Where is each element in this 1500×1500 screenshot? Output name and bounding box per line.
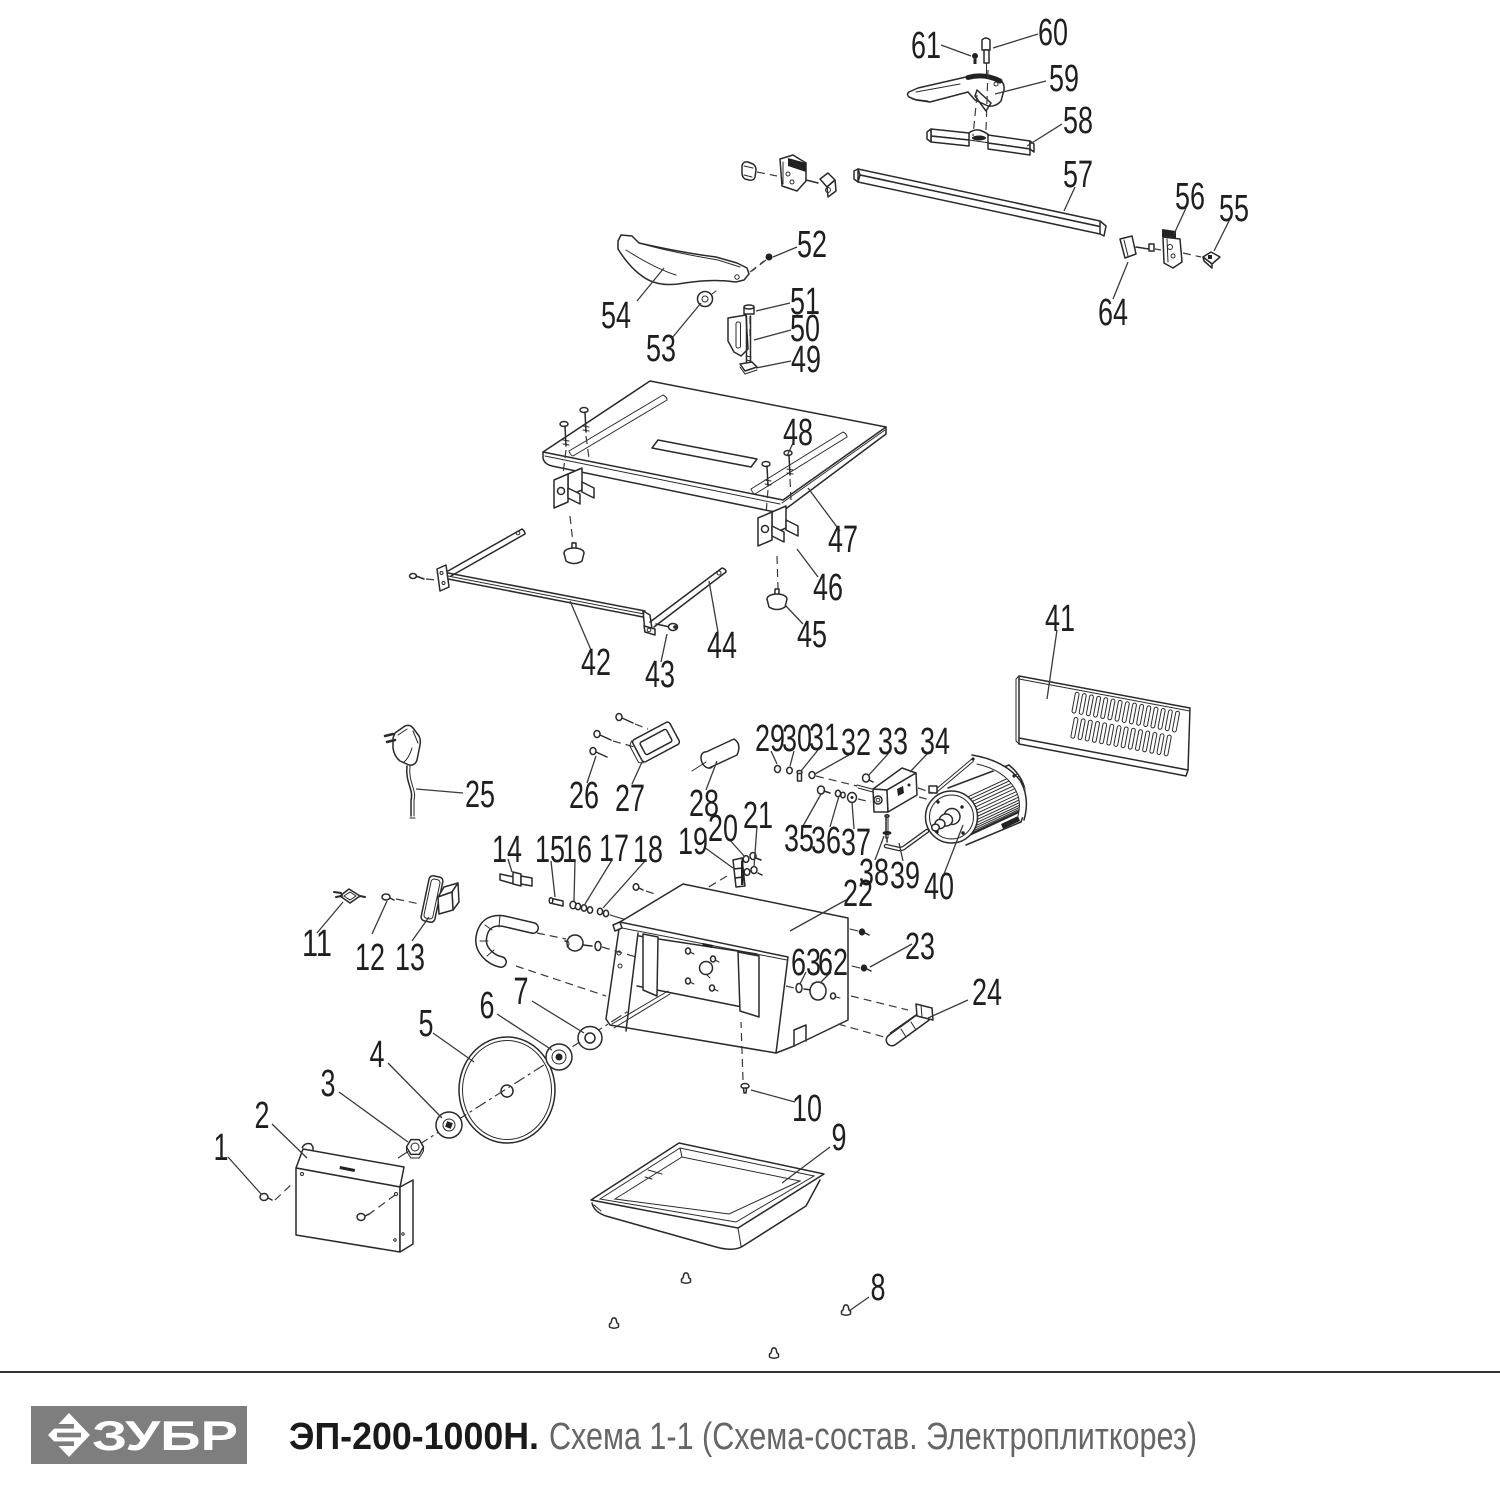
svg-text:30: 30: [782, 718, 812, 760]
svg-text:60: 60: [1038, 12, 1068, 54]
svg-text:56: 56: [1175, 176, 1205, 218]
svg-text:48: 48: [783, 412, 813, 454]
svg-text:62: 62: [818, 942, 848, 984]
svg-text:13: 13: [395, 937, 425, 979]
svg-text:47: 47: [828, 519, 858, 561]
svg-text:11: 11: [302, 923, 332, 965]
svg-text:23: 23: [905, 926, 935, 968]
svg-text:61: 61: [911, 25, 941, 67]
svg-text:6: 6: [480, 985, 495, 1027]
svg-text:9: 9: [832, 1117, 847, 1159]
svg-text:59: 59: [1049, 58, 1079, 100]
svg-text:39: 39: [890, 855, 920, 897]
svg-text:44: 44: [707, 625, 737, 667]
svg-text:8: 8: [871, 1267, 886, 1309]
svg-text:16: 16: [562, 829, 592, 871]
svg-text:52: 52: [797, 224, 827, 266]
svg-text:57: 57: [1063, 154, 1093, 196]
svg-text:24: 24: [972, 972, 1002, 1014]
svg-text:ЭП-200-1000Н.Схема 1-1 (Схема-: ЭП-200-1000Н.Схема 1-1 (Схема-состав. Эл…: [289, 1416, 1197, 1458]
svg-text:33: 33: [878, 721, 908, 763]
svg-text:18: 18: [633, 829, 663, 871]
svg-text:41: 41: [1045, 598, 1075, 640]
svg-text:63: 63: [791, 942, 821, 984]
svg-text:2: 2: [255, 1095, 270, 1137]
svg-text:21: 21: [743, 795, 773, 837]
svg-text:12: 12: [355, 937, 385, 979]
svg-text:55: 55: [1219, 188, 1249, 230]
svg-text:64: 64: [1098, 292, 1128, 334]
svg-text:1: 1: [214, 1127, 229, 1169]
svg-text:53: 53: [646, 328, 676, 370]
svg-text:22: 22: [843, 873, 873, 915]
svg-text:25: 25: [465, 774, 495, 816]
svg-text:19: 19: [678, 821, 708, 863]
svg-text:31: 31: [809, 717, 839, 759]
svg-text:40: 40: [924, 866, 954, 908]
svg-text:5: 5: [419, 1003, 434, 1045]
svg-text:17: 17: [599, 828, 629, 870]
svg-text:15: 15: [535, 829, 565, 871]
svg-text:3: 3: [321, 1063, 336, 1105]
svg-text:42: 42: [581, 642, 611, 684]
svg-text:10: 10: [792, 1088, 822, 1130]
svg-text:36: 36: [811, 820, 841, 862]
svg-text:43: 43: [645, 654, 675, 696]
svg-text:49: 49: [791, 339, 821, 381]
svg-text:54: 54: [601, 295, 631, 337]
svg-text:ЗУБР: ЗУБР: [92, 1412, 238, 1459]
svg-text:4: 4: [370, 1034, 385, 1076]
svg-text:14: 14: [492, 829, 522, 871]
svg-text:35: 35: [784, 818, 814, 860]
svg-text:58: 58: [1063, 100, 1093, 142]
svg-text:29: 29: [755, 718, 785, 760]
svg-text:27: 27: [615, 778, 645, 820]
svg-text:7: 7: [514, 971, 529, 1013]
svg-text:32: 32: [841, 722, 871, 764]
svg-text:45: 45: [797, 614, 827, 656]
svg-text:46: 46: [813, 567, 843, 609]
svg-text:34: 34: [920, 721, 950, 763]
svg-text:20: 20: [708, 808, 738, 850]
svg-text:26: 26: [569, 775, 599, 817]
